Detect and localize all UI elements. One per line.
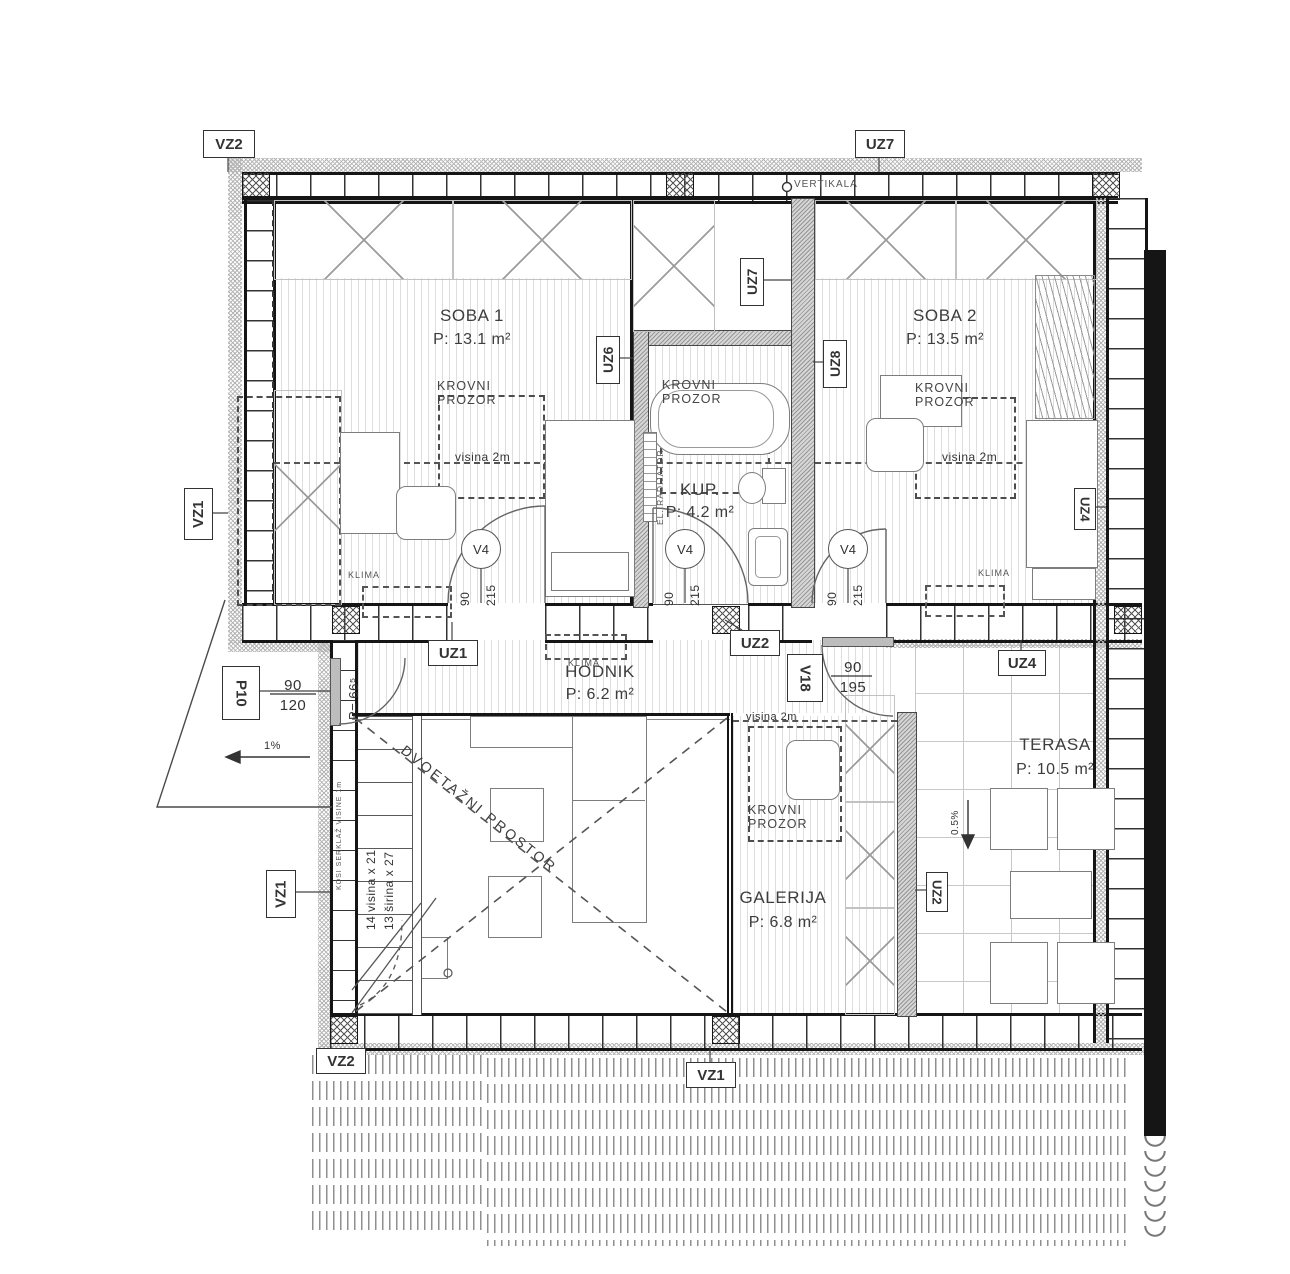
wall-right (1106, 198, 1148, 1043)
room-name-galerija: GALERIJA (728, 888, 838, 908)
room-area-galerija: P: 6.8 m² (730, 914, 836, 932)
door-width: 90 (662, 566, 676, 606)
sofa (572, 716, 647, 923)
chair (396, 486, 456, 540)
height-note: visina 2m (746, 711, 806, 723)
door-height: 215 (484, 566, 498, 606)
gallery-rim-right (731, 713, 733, 1015)
desk (340, 432, 400, 534)
door-height: 215 (688, 566, 702, 606)
sloped-ceiling-zone (845, 907, 895, 1015)
tag-uz6: UZ6 (596, 336, 620, 384)
room-area-hodnik: P: 6.2 m² (538, 686, 662, 704)
sloped-ceiling-zone (845, 801, 895, 909)
door-width: 90 (274, 677, 312, 694)
door-marker-v4: V4 (828, 529, 868, 569)
parapet-note: P= 66⁵ (346, 658, 361, 720)
tag-vz1-bottom: VZ1 (686, 1062, 736, 1088)
terrace-table (1010, 871, 1092, 919)
roof-window-outline (438, 395, 545, 499)
terrace-chair (1057, 942, 1115, 1004)
height-note: visina 2m (942, 450, 1004, 464)
terrace-chair (1057, 788, 1115, 850)
tag-uz2-hall: UZ2 (730, 630, 780, 656)
roof-edge-strip (1144, 1136, 1166, 1240)
bed-footboard (1032, 568, 1096, 600)
wardrobe (1035, 275, 1095, 419)
door-height: 195 (834, 679, 872, 696)
roof-plane-hatch (312, 1055, 483, 1235)
radiator-label: EL. RADIJATOR (655, 430, 665, 525)
height-2m-line (647, 462, 791, 466)
tag-p10: P10 (222, 666, 260, 720)
tag-uz4-terrace: UZ4 (998, 650, 1046, 676)
toilet-bowl (738, 472, 766, 504)
room-name-terasa: TERASA (1000, 735, 1110, 755)
floor-plan: SOBA 1 P: 13.1 m² SOBA 2 P: 13.5 m² KUP.… (0, 0, 1290, 1274)
room-area-soba2: P: 13.5 m² (880, 331, 1010, 349)
door-width: 90 (834, 659, 872, 676)
chair (866, 418, 924, 472)
armchair (488, 876, 542, 938)
knee-wall-outline (237, 396, 341, 606)
stair-rise-note: 14 visina x 21 (364, 810, 378, 930)
sloped-ceiling-zone (955, 200, 1097, 280)
wall-insulation-right (1096, 198, 1106, 1043)
vertical-shaft-label: VERTIKALA (794, 179, 874, 190)
tag-uz4-bed: UZ4 (1074, 488, 1096, 530)
ac-unit (545, 634, 627, 660)
tag-uz7-wall: UZ7 (740, 258, 764, 306)
ac-unit (925, 585, 1005, 617)
wall-insulation-top (228, 158, 1142, 172)
door-marker-v4: V4 (665, 529, 705, 569)
bath-wall-right (791, 198, 815, 608)
wall-corner-block (330, 1016, 358, 1044)
gallery-rim-right (727, 713, 729, 1015)
tag-uz8: UZ8 (823, 340, 847, 388)
sink-basin (755, 536, 781, 578)
door-width: 90 (825, 566, 839, 606)
double-height-label: DVOETAŽNI PROSTOR (398, 742, 580, 891)
terrace-chair (990, 942, 1048, 1004)
slope-label: 0.5% (950, 793, 961, 835)
roof-window-label: KROVNI PROZOR (748, 803, 820, 832)
tag-vz2-bottom: VZ2 (316, 1048, 366, 1074)
room-name-soba2: SOBA 2 (880, 306, 1010, 326)
tag-vz1-lower: VZ1 (266, 870, 296, 918)
door-leaf-v18 (822, 637, 894, 647)
ac-label: KLIMA (568, 658, 612, 668)
room-area-terasa: P: 10.5 m² (993, 761, 1117, 779)
tag-uz2-terrace: UZ2 (926, 872, 948, 912)
slope-label: 1% (264, 740, 294, 752)
sloped-ceiling-zone (452, 200, 632, 280)
stair-run-note: 13 širina x 27 (382, 810, 396, 930)
tag-uz1: UZ1 (428, 640, 478, 666)
door-width: 90 (458, 566, 472, 606)
cabinet (418, 937, 448, 979)
roof-window-label: KROVNI PROZOR (915, 381, 987, 410)
door-height: 120 (274, 697, 312, 714)
roof-window-label: KROVNI PROZOR (662, 378, 734, 407)
room-name-soba1: SOBA 1 (407, 306, 537, 326)
bath-wall-top (633, 330, 795, 346)
room-area-kup: P: 4.2 m² (650, 504, 750, 522)
roof-window-label: KROVNI PROZOR (437, 379, 509, 408)
sofa-seam (572, 800, 645, 801)
sloped-ceiling-zone (633, 200, 715, 332)
bed-pillow (551, 552, 629, 591)
boundary-bar (1144, 250, 1166, 1136)
tag-vz1-left: VZ1 (184, 488, 213, 540)
door-height: 215 (851, 566, 865, 606)
wall-corner-block (332, 606, 360, 634)
roof-plane-hatch (487, 1058, 1128, 1246)
sloped-ceiling-zone (274, 200, 454, 280)
room-name-kup: KUP. (660, 480, 740, 500)
door-leaf-p10 (330, 658, 341, 726)
door-marker-v4: V4 (461, 529, 501, 569)
ring-beam-note: KOSI SERKLAŽ VISINE 1m (336, 760, 343, 890)
sloped-ceiling-zone (815, 200, 957, 280)
room-area-soba1: P: 13.1 m² (407, 331, 537, 349)
chair (786, 740, 840, 800)
tag-uz7-top: UZ7 (855, 130, 905, 158)
height-note: visina 2m (455, 450, 517, 464)
terrace-wall (897, 712, 917, 1017)
ac-unit (362, 586, 452, 618)
wall-corner-block (712, 1016, 740, 1044)
wall-insulation-lower-left (318, 640, 330, 1055)
sloped-ceiling-zone (845, 695, 895, 803)
tag-vz2-top: VZ2 (203, 130, 255, 158)
ac-label: KLIMA (978, 568, 1022, 578)
terrace-chair (990, 788, 1048, 850)
tag-v18: V18 (787, 654, 823, 702)
ac-label: KLIMA (348, 570, 392, 580)
